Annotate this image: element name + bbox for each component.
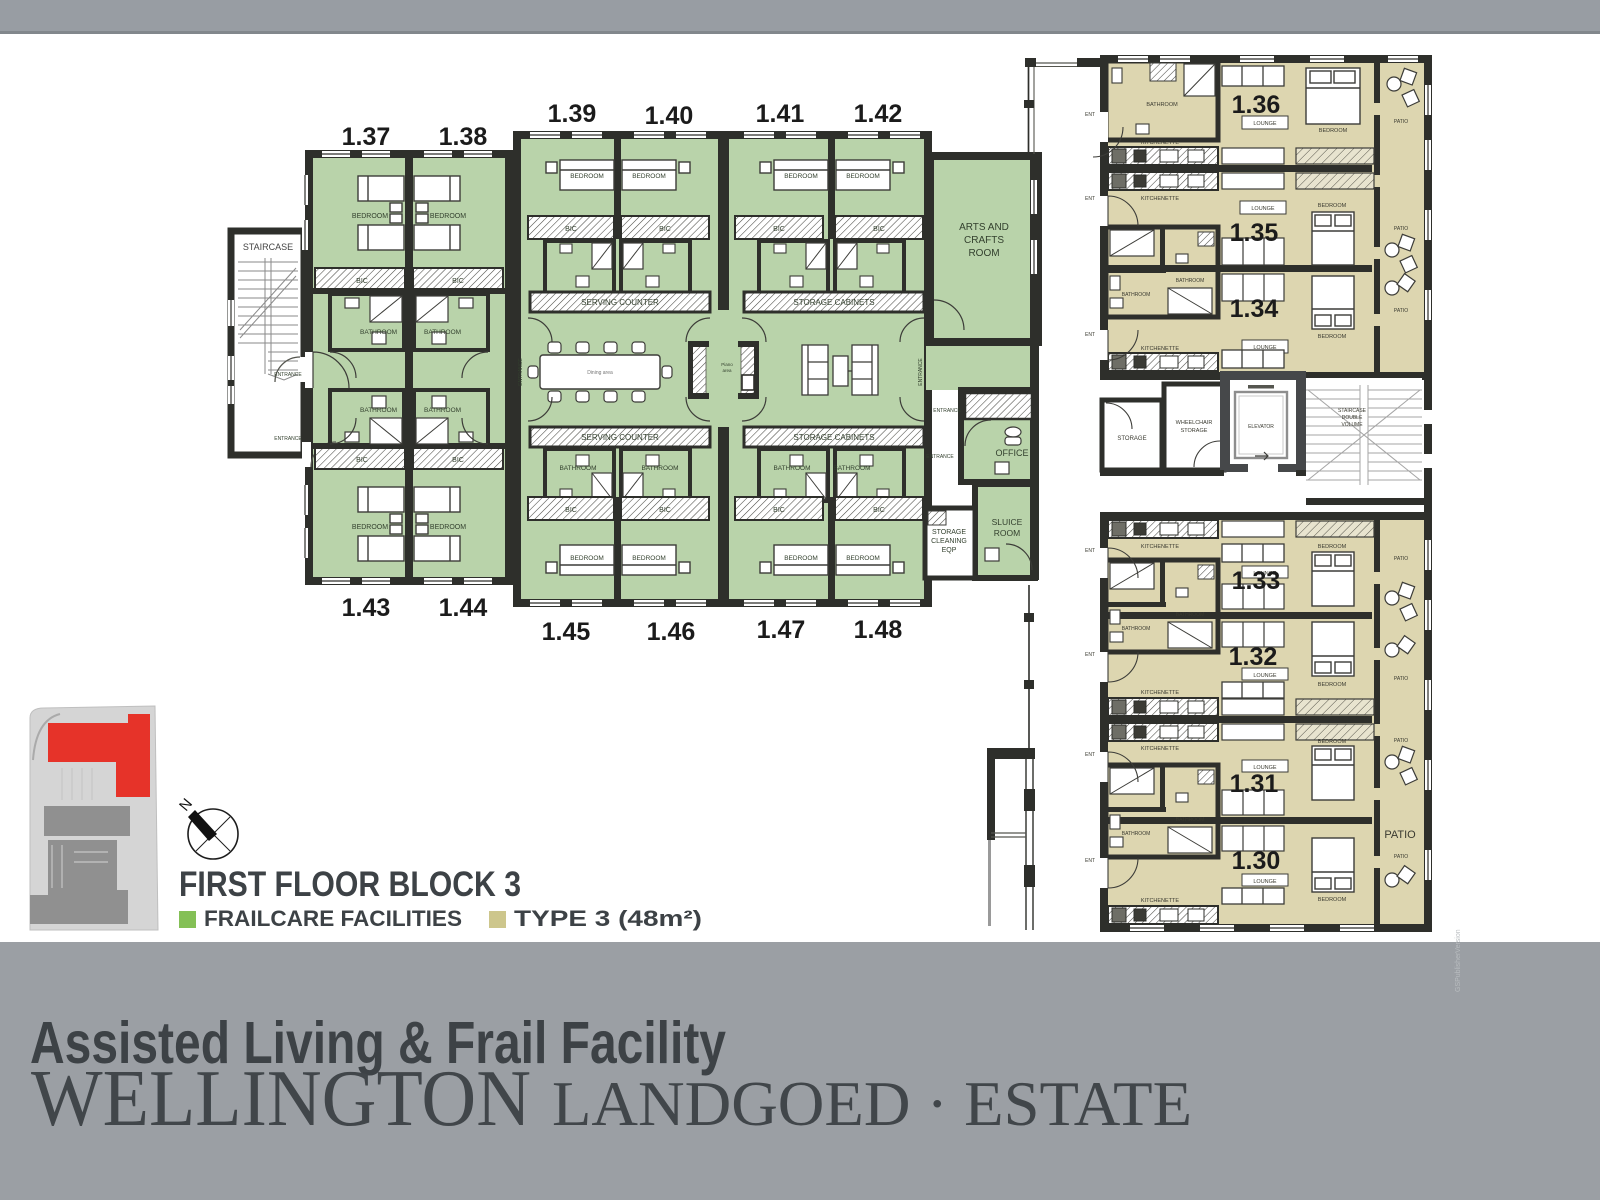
svg-text:BEDROOM: BEDROOM bbox=[1318, 739, 1347, 745]
svg-text:1.32: 1.32 bbox=[1229, 643, 1278, 671]
svg-text:1.33: 1.33 bbox=[1232, 567, 1281, 595]
svg-text:BEDROOM: BEDROOM bbox=[352, 213, 388, 220]
svg-text:BEDROOM: BEDROOM bbox=[632, 555, 666, 562]
svg-text:BATHROOM: BATHROOM bbox=[1176, 817, 1205, 823]
svg-text:1.42: 1.42 bbox=[854, 100, 903, 128]
svg-text:FIRST FLOOR BLOCK 3: FIRST FLOOR BLOCK 3 bbox=[179, 865, 521, 904]
svg-text:BEDROOM: BEDROOM bbox=[846, 555, 880, 562]
svg-text:BIC: BIC bbox=[452, 457, 464, 464]
svg-text:ENTRANCE: ENTRANCE bbox=[518, 358, 524, 386]
svg-text:area: area bbox=[722, 368, 732, 373]
svg-text:PATIO: PATIO bbox=[1394, 854, 1408, 860]
svg-text:BIC: BIC bbox=[565, 507, 577, 514]
svg-text:Piano: Piano bbox=[721, 362, 733, 367]
svg-text:1.44: 1.44 bbox=[439, 594, 488, 622]
svg-text:BATHROOM: BATHROOM bbox=[424, 329, 461, 336]
svg-text:ARTS AND: ARTS AND bbox=[959, 222, 1009, 233]
svg-text:ENT: ENT bbox=[1085, 548, 1095, 554]
svg-text:CRAFTS: CRAFTS bbox=[964, 235, 1004, 246]
svg-text:ELEVATOR: ELEVATOR bbox=[1248, 424, 1274, 430]
svg-text:BIC: BIC bbox=[659, 507, 671, 514]
svg-text:VOLUME: VOLUME bbox=[1341, 422, 1363, 428]
svg-text:ROOM: ROOM bbox=[994, 528, 1020, 538]
svg-text:BATHROOM: BATHROOM bbox=[424, 407, 461, 414]
svg-text:SLUICE: SLUICE bbox=[992, 517, 1023, 527]
svg-text:BEDROOM: BEDROOM bbox=[1318, 334, 1347, 340]
svg-text:BATHROOM: BATHROOM bbox=[1122, 626, 1151, 632]
svg-text:BEDROOM: BEDROOM bbox=[570, 555, 604, 562]
svg-text:ENT: ENT bbox=[1085, 112, 1095, 118]
svg-text:STORAGE CABINETS: STORAGE CABINETS bbox=[793, 433, 874, 442]
svg-text:FRAILCARE FACILITIES: FRAILCARE FACILITIES bbox=[204, 906, 462, 931]
svg-text:OFFICE: OFFICE bbox=[996, 448, 1029, 458]
svg-text:WELLINGTON: WELLINGTON bbox=[31, 1055, 531, 1143]
svg-text:BIC: BIC bbox=[565, 226, 577, 233]
svg-text:ENT: ENT bbox=[1085, 196, 1095, 202]
svg-text:1.41: 1.41 bbox=[756, 100, 805, 128]
svg-text:BATHROOM: BATHROOM bbox=[1122, 292, 1151, 298]
svg-text:LOUNGE: LOUNGE bbox=[1251, 206, 1275, 212]
svg-text:TYPE 3 (48m²): TYPE 3 (48m²) bbox=[514, 906, 702, 931]
svg-text:1.34: 1.34 bbox=[1230, 295, 1279, 323]
svg-text:BEDROOM: BEDROOM bbox=[570, 173, 604, 180]
svg-text:PATIO: PATIO bbox=[1394, 226, 1408, 232]
svg-text:BIC: BIC bbox=[773, 226, 785, 233]
svg-text:KITCHENETTE: KITCHENETTE bbox=[1141, 690, 1180, 696]
svg-text:STORAGE CABINETS: STORAGE CABINETS bbox=[793, 298, 874, 307]
svg-text:LOUNGE: LOUNGE bbox=[1253, 879, 1277, 885]
svg-text:ENT: ENT bbox=[1085, 858, 1095, 864]
svg-text:BEDROOM: BEDROOM bbox=[846, 173, 880, 180]
svg-text:BEDROOM: BEDROOM bbox=[430, 524, 466, 531]
svg-text:PATIO: PATIO bbox=[1394, 308, 1408, 314]
svg-text:ENT: ENT bbox=[1085, 752, 1095, 758]
svg-text:ENT: ENT bbox=[1085, 652, 1095, 658]
svg-text:ENTRANCE: ENTRANCE bbox=[274, 372, 302, 378]
svg-text:LOUNGE: LOUNGE bbox=[1253, 673, 1277, 679]
svg-text:LANDGOED · ESTATE: LANDGOED · ESTATE bbox=[552, 1068, 1192, 1139]
svg-text:BEDROOM: BEDROOM bbox=[352, 524, 388, 531]
svg-text:BATHROOM: BATHROOM bbox=[1146, 102, 1178, 108]
svg-text:BATHROOM: BATHROOM bbox=[1176, 612, 1205, 618]
svg-text:BIC: BIC bbox=[452, 278, 464, 285]
svg-text:1.38: 1.38 bbox=[439, 123, 488, 151]
svg-text:EQP: EQP bbox=[942, 547, 957, 554]
svg-text:STORAGE: STORAGE bbox=[932, 529, 966, 536]
svg-text:STORAGE: STORAGE bbox=[1181, 428, 1208, 434]
svg-text:SERVING COUNTER: SERVING COUNTER bbox=[581, 298, 659, 307]
svg-text:PATIO: PATIO bbox=[1384, 829, 1416, 841]
svg-text:Dining area: Dining area bbox=[587, 370, 613, 376]
svg-text:BATHROOM: BATHROOM bbox=[360, 407, 397, 414]
svg-text:1.35: 1.35 bbox=[1230, 219, 1279, 247]
svg-text:BATHROOM: BATHROOM bbox=[1122, 831, 1151, 837]
svg-text:KITCHENETTE: KITCHENETTE bbox=[1141, 140, 1180, 146]
svg-text:BATHROOM: BATHROOM bbox=[773, 465, 810, 472]
svg-text:GSPublisherVersion: GSPublisherVersion bbox=[1455, 929, 1462, 992]
svg-text:PATIO: PATIO bbox=[1394, 556, 1408, 562]
svg-text:BEDROOM: BEDROOM bbox=[1318, 897, 1347, 903]
svg-text:ENTRANCE: ENTRANCE bbox=[274, 436, 302, 442]
svg-text:1.30: 1.30 bbox=[1232, 847, 1281, 875]
svg-text:SERVING COUNTER: SERVING COUNTER bbox=[581, 433, 659, 442]
svg-text:BEDROOM: BEDROOM bbox=[430, 213, 466, 220]
svg-text:CLEANING: CLEANING bbox=[931, 538, 967, 545]
svg-text:1.47: 1.47 bbox=[757, 616, 806, 644]
svg-text:STAIRCASE: STAIRCASE bbox=[1338, 408, 1367, 414]
svg-text:BEDROOM: BEDROOM bbox=[1319, 128, 1348, 134]
svg-text:1.46: 1.46 bbox=[647, 618, 696, 646]
svg-text:DOUBLE: DOUBLE bbox=[1342, 415, 1363, 421]
svg-text:BATHROOM: BATHROOM bbox=[1176, 278, 1205, 284]
svg-text:BEDROOM: BEDROOM bbox=[1318, 682, 1347, 688]
svg-text:LOUNGE: LOUNGE bbox=[1253, 121, 1277, 127]
svg-text:STAIRCASE: STAIRCASE bbox=[243, 242, 293, 252]
svg-text:BIC: BIC bbox=[873, 226, 885, 233]
svg-text:KITCHENETTE: KITCHENETTE bbox=[1141, 196, 1180, 202]
svg-text:BATHROOM: BATHROOM bbox=[360, 329, 397, 336]
svg-text:KITCHENETTE: KITCHENETTE bbox=[1141, 898, 1180, 904]
svg-text:BATHROOM: BATHROOM bbox=[559, 465, 596, 472]
svg-text:PATIO: PATIO bbox=[1394, 119, 1408, 125]
svg-text:1.45: 1.45 bbox=[542, 618, 591, 646]
svg-text:BEDROOM: BEDROOM bbox=[1318, 544, 1347, 550]
svg-text:1.40: 1.40 bbox=[645, 102, 694, 130]
svg-text:BATHROOM: BATHROOM bbox=[641, 465, 678, 472]
svg-text:BEDROOM: BEDROOM bbox=[784, 173, 818, 180]
svg-text:WHEELCHAIR: WHEELCHAIR bbox=[1176, 420, 1213, 426]
svg-text:BIC: BIC bbox=[659, 226, 671, 233]
svg-text:ROOM: ROOM bbox=[968, 248, 999, 259]
svg-text:1.37: 1.37 bbox=[342, 123, 391, 151]
svg-text:ENTRANCE: ENTRANCE bbox=[933, 408, 961, 414]
svg-text:1.43: 1.43 bbox=[342, 594, 391, 622]
svg-text:KITCHENETTE: KITCHENETTE bbox=[1141, 746, 1180, 752]
svg-text:BEDROOM: BEDROOM bbox=[632, 173, 666, 180]
svg-text:ENTRANCE: ENTRANCE bbox=[926, 454, 954, 460]
svg-text:BIC: BIC bbox=[356, 278, 368, 285]
svg-text:PATIO: PATIO bbox=[1394, 676, 1408, 682]
svg-text:BIC: BIC bbox=[773, 507, 785, 514]
svg-text:1.31: 1.31 bbox=[1230, 770, 1279, 798]
svg-text:ENTRANCE: ENTRANCE bbox=[918, 358, 924, 386]
svg-text:BEDROOM: BEDROOM bbox=[784, 555, 818, 562]
svg-text:1.36: 1.36 bbox=[1232, 91, 1281, 119]
svg-text:1.39: 1.39 bbox=[548, 100, 597, 128]
svg-text:ENT: ENT bbox=[1085, 332, 1095, 338]
svg-text:BEDROOM: BEDROOM bbox=[1318, 203, 1347, 209]
svg-text:PATIO: PATIO bbox=[1394, 738, 1408, 744]
svg-text:STORAGE: STORAGE bbox=[1117, 436, 1146, 442]
svg-text:BIC: BIC bbox=[356, 457, 368, 464]
svg-text:BIC: BIC bbox=[873, 507, 885, 514]
svg-text:KITCHENETTE: KITCHENETTE bbox=[1141, 544, 1180, 550]
svg-text:KITCHENETTE: KITCHENETTE bbox=[1141, 346, 1180, 352]
svg-text:1.48: 1.48 bbox=[854, 616, 903, 644]
svg-text:BATHROOM: BATHROOM bbox=[833, 465, 870, 472]
